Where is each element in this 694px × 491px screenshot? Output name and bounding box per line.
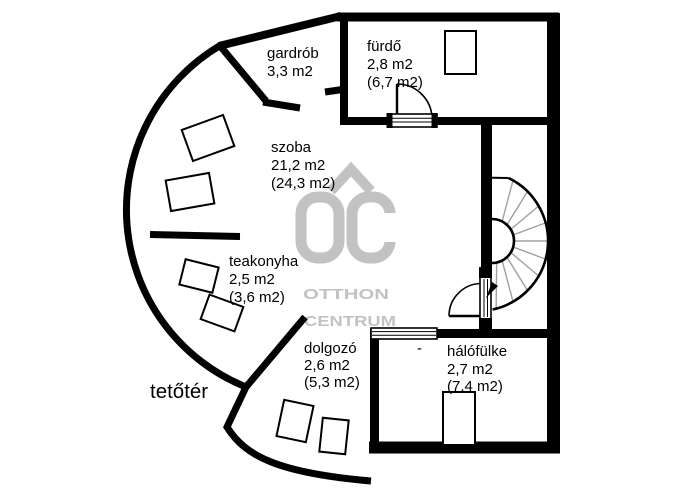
watermark: OTTHON CENTRUM xyxy=(301,169,402,330)
watermark-brand-line1: OTTHON xyxy=(303,286,389,303)
floorplan-page: OTTHON CENTRUM xyxy=(0,0,694,491)
stair-door-frame xyxy=(480,277,491,319)
teakonyha-partition-wall xyxy=(150,235,240,237)
room-label-dolgozo-name: dolgozó xyxy=(304,340,357,357)
room-label-furdo-gross: (6,7 m2) xyxy=(367,74,423,91)
watermark-logo-o xyxy=(301,197,339,258)
teakonyha-skylight-1 xyxy=(179,259,218,292)
stair-step-line xyxy=(507,257,528,291)
window-frame xyxy=(371,328,437,339)
gardrob-left-wall xyxy=(221,47,266,101)
room-label-teakonyha-gross: (3,6 m2) xyxy=(229,289,285,306)
gardrob-bottom-wall-left xyxy=(263,102,300,108)
szoba-skylight-1 xyxy=(182,115,235,161)
floorplan-svg: OTTHON CENTRUM xyxy=(0,0,694,491)
room-label-szoba-gross: (24,3 m2) xyxy=(271,175,335,192)
halofulke-window xyxy=(371,328,437,339)
room-label-furdo-area: 2,8 m2 xyxy=(367,56,413,73)
dolgozo-partition-wall xyxy=(246,317,305,387)
room-label-gardrob-name: gardrób xyxy=(267,45,319,62)
room-label-teakonyha-area: 2,5 m2 xyxy=(229,271,275,288)
watermark-roof-icon xyxy=(331,169,371,191)
stair-door-swing-arc xyxy=(449,284,482,317)
furdo-door-threshold xyxy=(388,114,437,127)
room-label-dolgozo-area: 2,6 m2 xyxy=(304,357,350,374)
stair-step-line xyxy=(507,192,528,226)
stair-inner-arc xyxy=(492,219,514,263)
halofulke-skylight xyxy=(443,392,475,445)
room-label-teakonyha-name: teakonyha xyxy=(229,253,299,270)
frame-cap xyxy=(479,267,492,278)
stair-outer-arc xyxy=(493,178,548,309)
room-label-szoba-name: szoba xyxy=(271,139,312,156)
dash-marker: - xyxy=(417,340,422,357)
room-label-halofulke-area: 2,7 m2 xyxy=(447,361,493,378)
floor-label-tetoter: tetőtér xyxy=(150,380,208,403)
frame-cap xyxy=(479,318,492,330)
spiral-staircase xyxy=(486,178,548,310)
dolgozo-skylight-2 xyxy=(319,418,348,455)
stair-door xyxy=(449,267,492,330)
dolgozo-skylight-1 xyxy=(276,400,313,442)
room-label-halofulke-name: hálófülke xyxy=(447,343,507,360)
room-label-furdo-name: fürdő xyxy=(367,38,401,55)
room-label-gardrob-area: 3,3 m2 xyxy=(267,63,313,80)
room-label-szoba-area: 21,2 m2 xyxy=(271,157,325,174)
room-label-halofulke-gross: (7,4 m2) xyxy=(447,378,503,395)
stair-step-line xyxy=(502,180,513,222)
room-label-dolgozo-gross: (5,3 m2) xyxy=(304,374,360,391)
stair-step-line xyxy=(502,260,513,302)
szoba-skylight-2 xyxy=(166,173,215,211)
watermark-logo-c-gap xyxy=(381,213,402,242)
gardrob-top-wall xyxy=(219,16,341,46)
threshold-cap xyxy=(432,113,438,128)
furdo-skylight xyxy=(445,31,476,74)
threshold-cap xyxy=(387,113,393,128)
